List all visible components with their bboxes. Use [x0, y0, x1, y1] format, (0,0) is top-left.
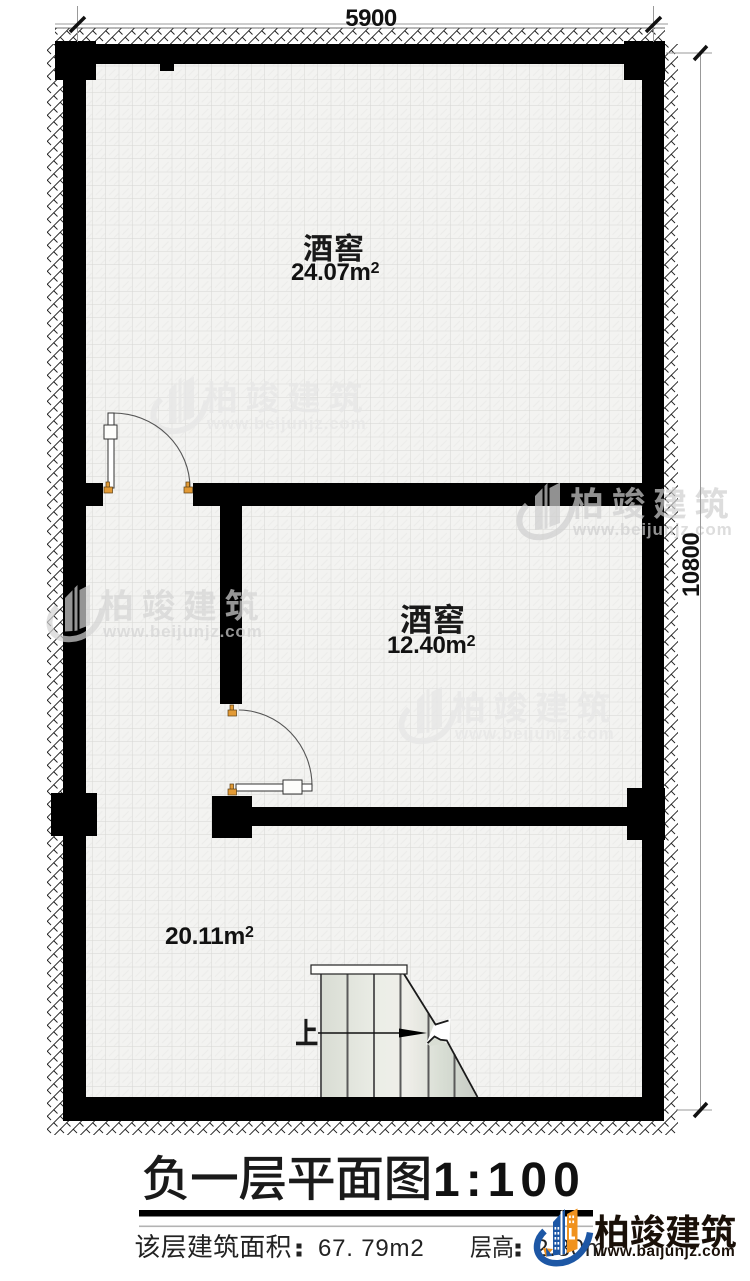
svg-text:www.beijunjz.com: www.beijunjz.com: [206, 414, 367, 433]
svg-text:www.baijunjz.com: www.baijunjz.com: [594, 1243, 735, 1260]
svg-text:10800: 10800: [678, 533, 705, 597]
svg-text:20.11m2: 20.11m2: [165, 923, 254, 950]
svg-text:67. 79m2: 67. 79m2: [318, 1235, 424, 1262]
svg-text:www.beijunjz.com: www.beijunjz.com: [102, 622, 263, 641]
svg-text:www.beijunjz.com: www.beijunjz.com: [572, 520, 733, 539]
svg-text:1:100: 1:100: [433, 1154, 586, 1207]
svg-text:5900: 5900: [345, 5, 397, 32]
svg-text:www.beijunjz.com: www.beijunjz.com: [454, 724, 615, 743]
svg-text:12.40m2: 12.40m2: [387, 632, 476, 659]
svg-text:24.07m2: 24.07m2: [291, 259, 380, 286]
